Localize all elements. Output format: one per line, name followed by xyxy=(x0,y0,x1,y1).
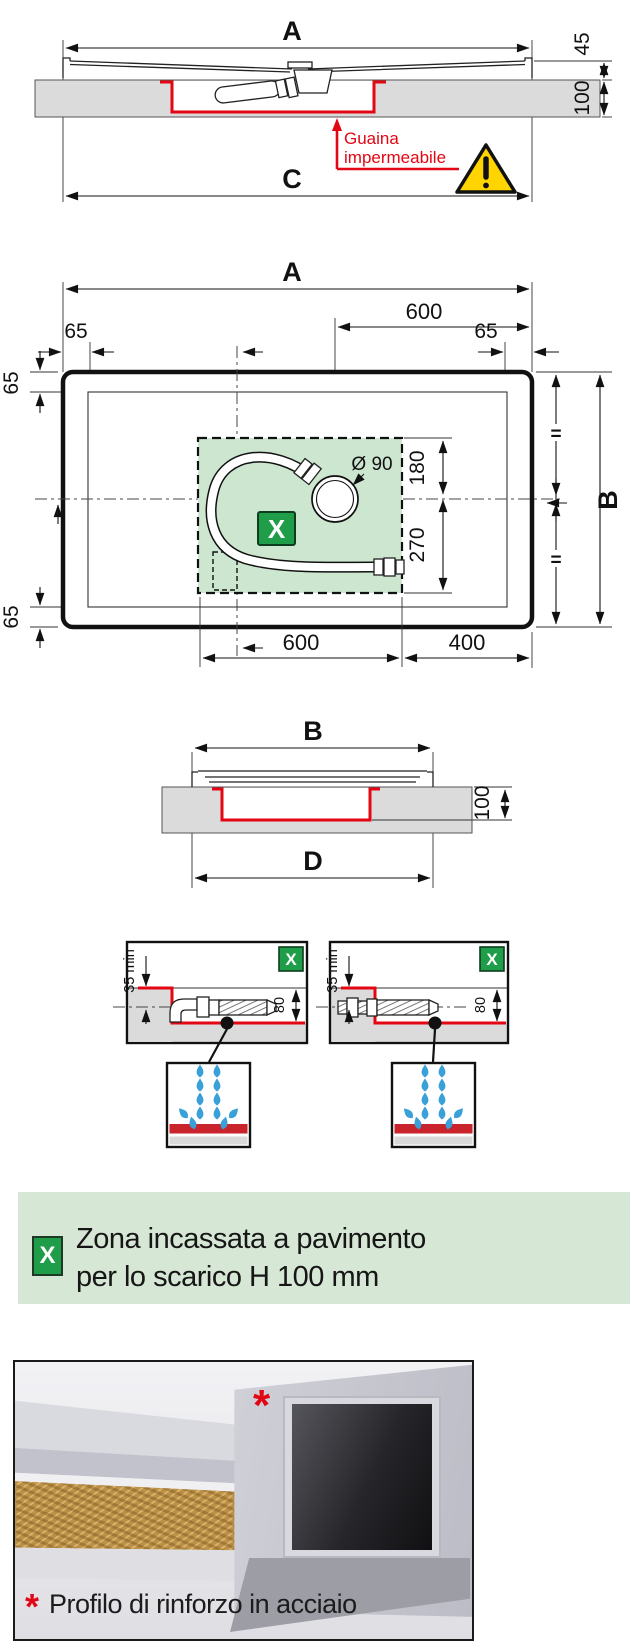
svg-text:X: X xyxy=(486,950,498,969)
legend-line-2: per lo scarico H 100 mm xyxy=(76,1258,426,1296)
dim-35min-right: 35 min xyxy=(325,949,341,993)
drain-point xyxy=(221,1017,234,1030)
photo-caption: *Profilo di rinforzo in acciaio xyxy=(25,1586,357,1628)
dim-65-top-right: 65 xyxy=(474,320,497,343)
shower-tray-profile-b xyxy=(192,771,433,787)
dim-label-a-plan: A xyxy=(282,257,302,287)
dim-35min-left: 35 min xyxy=(122,949,138,993)
svg-text:X: X xyxy=(268,514,286,544)
membrane-callout: Guaina impermeabile xyxy=(332,118,459,169)
drain-hole xyxy=(312,476,358,522)
cross-section-top-diagram: A 45 100 xyxy=(35,16,612,202)
technical-drawing: A 45 100 xyxy=(0,0,635,1180)
water-drops-box-left xyxy=(167,1063,250,1147)
cross-section-b-diagram: B 100 D xyxy=(162,716,512,888)
legend-banner: X Zona incassata a pavimento per lo scar… xyxy=(18,1192,630,1304)
equal-mark-bottom: = xyxy=(550,550,561,571)
dim-600-top: 600 xyxy=(406,299,443,324)
membrane-label-2: impermeabile xyxy=(344,148,446,167)
dim-label-d: D xyxy=(303,846,323,876)
water-drops-box-right xyxy=(392,1063,475,1147)
steel-profile-opening xyxy=(292,1404,432,1550)
plan-view-diagram: A 600 65 65 65 65 xyxy=(0,257,623,668)
dim-label-b-plan: B xyxy=(593,490,623,510)
drain-point xyxy=(429,1017,442,1030)
dim-65-top-left: 65 xyxy=(64,320,87,343)
asterisk-marker: * xyxy=(253,1384,270,1428)
page: A 45 100 xyxy=(0,0,635,1650)
x-marker-icon: X xyxy=(480,947,504,971)
dim-label-a-top: A xyxy=(282,16,302,46)
dim-400-bottom: 400 xyxy=(449,630,486,655)
membrane-label-1: Guaina xyxy=(344,129,399,148)
dim-65-left-bottom: 65 xyxy=(0,605,23,628)
drain-detail-right: 35 min 80 X xyxy=(316,942,508,1062)
reinforcement-photo: * *Profilo di rinforzo in acciaio xyxy=(13,1360,474,1641)
dim-100-b: 100 xyxy=(471,785,494,820)
caption-text: Profilo di rinforzo in acciaio xyxy=(49,1589,357,1619)
drain-pipe-straight xyxy=(338,998,438,1017)
dim-270: 270 xyxy=(406,527,429,562)
x-marker-icon: X xyxy=(258,512,295,545)
x-marker-icon: X xyxy=(32,1236,63,1276)
dim-80-right: 80 xyxy=(473,997,489,1013)
dim-80-left: 80 xyxy=(272,997,288,1013)
dim-100-top: 100 xyxy=(571,80,594,115)
x-marker-icon: X xyxy=(279,947,303,971)
dim-label-b-section: B xyxy=(303,716,323,746)
legend-text: Zona incassata a pavimento per lo scaric… xyxy=(76,1220,426,1296)
warning-triangle-icon xyxy=(457,145,515,192)
drain-detail-left: 35 min 80 X xyxy=(113,942,307,1062)
dim-600-bottom: 600 xyxy=(283,630,320,655)
equal-mark-top: = xyxy=(550,424,561,445)
dim-65-left-top: 65 xyxy=(0,371,23,394)
dim-label-c: C xyxy=(282,164,302,194)
dim-180: 180 xyxy=(406,450,429,485)
legend-line-1: Zona incassata a pavimento xyxy=(76,1220,426,1258)
drain-diameter-label: Ø 90 xyxy=(351,454,392,475)
dim-45: 45 xyxy=(571,32,594,55)
svg-text:X: X xyxy=(285,950,297,969)
asterisk-marker: * xyxy=(25,1586,39,1627)
